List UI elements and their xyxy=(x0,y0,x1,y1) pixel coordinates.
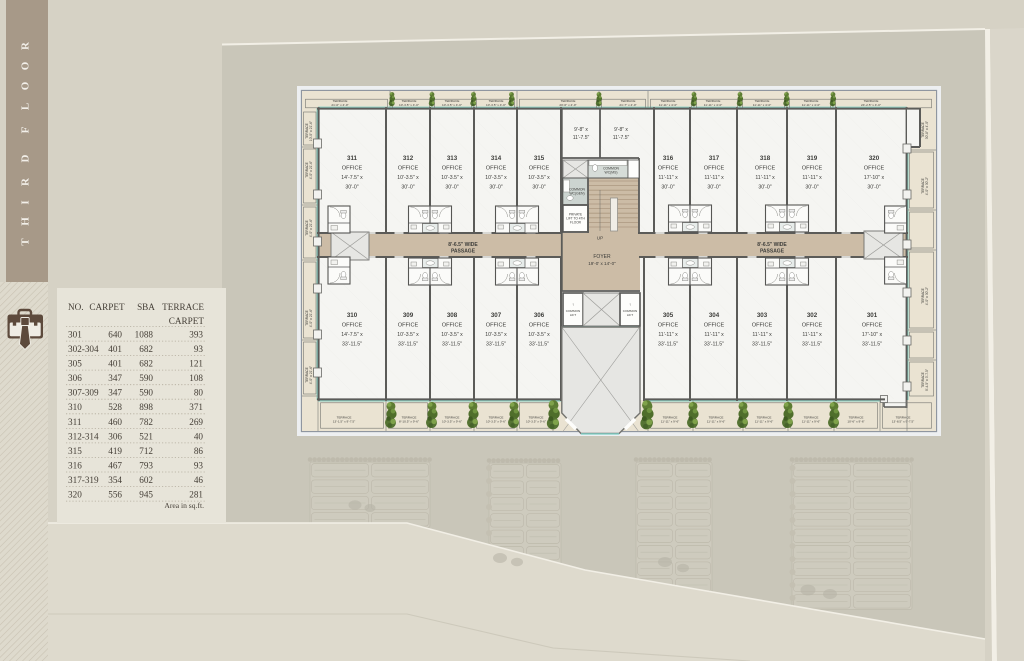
svg-text:10'-6" x 9'-6": 10'-6" x 9'-6" xyxy=(847,420,864,424)
svg-text:269: 269 xyxy=(189,417,203,427)
svg-text:33'-11.5": 33'-11.5" xyxy=(704,342,724,348)
svg-text:OFFICE: OFFICE xyxy=(802,166,823,172)
svg-text:14'-7.5" x: 14'-7.5" x xyxy=(341,175,363,181)
svg-text:I: I xyxy=(20,200,32,204)
svg-text:793: 793 xyxy=(139,461,153,471)
svg-text:OFFICE: OFFICE xyxy=(658,166,679,172)
svg-text:8'-6.5" WIDE: 8'-6.5" WIDE xyxy=(757,242,787,248)
svg-text:310: 310 xyxy=(347,312,358,319)
svg-text:30'-0": 30'-0" xyxy=(401,185,414,191)
svg-text:528: 528 xyxy=(108,402,122,412)
svg-text:319: 319 xyxy=(807,155,818,162)
svg-text:4'-0" x 21'-6": 4'-0" x 21'-6" xyxy=(309,218,313,237)
svg-text:CARPET: CARPET xyxy=(169,316,205,326)
svg-text:11'-11" x: 11'-11" x xyxy=(802,332,822,338)
svg-text:10'-3.5" x: 10'-3.5" x xyxy=(441,175,463,181)
svg-text:OFFICE: OFFICE xyxy=(864,166,885,172)
svg-text:9'-8" x: 9'-8" x xyxy=(574,127,588,133)
svg-text:30'-0": 30'-0" xyxy=(489,185,502,191)
svg-text:30'-0": 30'-0" xyxy=(867,185,880,191)
svg-text:11'-11" x: 11'-11" x xyxy=(704,175,724,181)
svg-text:WC(GEN): WC(GEN) xyxy=(569,192,584,196)
svg-text:OFFICE: OFFICE xyxy=(342,323,363,329)
svg-text:19'-0' x 14'-0": 19'-0' x 14'-0" xyxy=(588,261,616,266)
svg-text:311: 311 xyxy=(347,155,358,162)
svg-text:4'-0" x 21'-6": 4'-0" x 21'-6" xyxy=(309,160,313,179)
svg-text:33'-11.5": 33'-11.5" xyxy=(862,342,882,348)
svg-text:11'-11" x 4'-0": 11'-11" x 4'-0" xyxy=(802,103,821,107)
svg-text:UP: UP xyxy=(597,236,603,241)
svg-text:OFFICE: OFFICE xyxy=(529,166,550,172)
svg-text:Area in sq.ft.: Area in sq.ft. xyxy=(164,501,204,510)
svg-text:R: R xyxy=(20,177,32,186)
svg-text:FOYER: FOYER xyxy=(593,254,611,260)
svg-text:LIFT: LIFT xyxy=(627,313,633,317)
svg-text:682: 682 xyxy=(139,344,153,354)
svg-text:11'-11" x 9'-6": 11'-11" x 9'-6" xyxy=(802,420,821,424)
svg-text:401: 401 xyxy=(108,344,122,354)
svg-text:13'-1.5" x 9'-7.5": 13'-1.5" x 9'-7.5" xyxy=(333,420,355,424)
svg-text:↑: ↑ xyxy=(572,302,574,307)
svg-text:O: O xyxy=(20,81,32,90)
svg-text:312: 312 xyxy=(403,155,414,162)
svg-text:OFFICE: OFFICE xyxy=(752,323,773,329)
svg-text:9'-8" x: 9'-8" x xyxy=(614,127,628,133)
svg-text:10'-3.5" x: 10'-3.5" x xyxy=(441,332,463,338)
svg-text:460: 460 xyxy=(108,417,122,427)
svg-text:OFFICE: OFFICE xyxy=(658,323,679,329)
svg-text:D: D xyxy=(20,154,32,162)
svg-text:30'-0": 30'-0" xyxy=(445,185,458,191)
svg-text:93: 93 xyxy=(194,461,204,471)
svg-text:14'-7.5" x: 14'-7.5" x xyxy=(341,332,363,338)
svg-text:33'-11.5": 33'-11.5" xyxy=(342,342,362,348)
svg-text:354: 354 xyxy=(108,475,122,485)
svg-text:8'-10.5" x 9'-6": 8'-10.5" x 9'-6" xyxy=(399,420,419,424)
svg-text:108: 108 xyxy=(189,373,203,383)
svg-text:10'-3.5" x: 10'-3.5" x xyxy=(485,175,507,181)
svg-text:30'-8" x 4'-0": 30'-8" x 4'-0" xyxy=(925,120,929,139)
svg-text:11'-11" x: 11'-11" x xyxy=(658,332,678,338)
svg-text:312-314: 312-314 xyxy=(68,431,99,441)
svg-text:602: 602 xyxy=(139,475,153,485)
svg-text:10'-3.5" x 4'-0": 10'-3.5" x 4'-0" xyxy=(486,103,506,107)
svg-text:315: 315 xyxy=(68,446,82,456)
svg-text:316: 316 xyxy=(68,461,82,471)
svg-text:86: 86 xyxy=(194,446,204,456)
svg-text:318: 318 xyxy=(760,155,771,162)
svg-text:30'-0": 30'-0" xyxy=(532,185,545,191)
svg-text:33'-11.5": 33'-11.5" xyxy=(486,342,506,348)
svg-text:10'-3.5" x 9'-6": 10'-3.5" x 9'-6" xyxy=(442,420,462,424)
svg-text:11'-11" x: 11'-11" x xyxy=(755,175,775,181)
svg-text:302: 302 xyxy=(807,312,818,319)
svg-text:PASSAGE: PASSAGE xyxy=(760,249,785,255)
svg-text:11'-11" x: 11'-11" x xyxy=(704,332,724,338)
svg-text:419: 419 xyxy=(108,446,122,456)
svg-text:11'-11" x 9'-6": 11'-11" x 9'-6" xyxy=(661,420,680,424)
svg-text:OFFICE: OFFICE xyxy=(442,166,463,172)
svg-text:NO.: NO. xyxy=(68,302,84,312)
svg-text:10'-3.5" x: 10'-3.5" x xyxy=(528,175,550,181)
svg-text:301: 301 xyxy=(867,312,878,319)
svg-text:SBA: SBA xyxy=(137,302,155,312)
svg-text:33'-11.5": 33'-11.5" xyxy=(442,342,462,348)
svg-text:10'-3.5" x 4'-0": 10'-3.5" x 4'-0" xyxy=(442,103,462,107)
svg-text:315: 315 xyxy=(534,155,545,162)
svg-text:4'-0" x 30'-2": 4'-0" x 30'-2" xyxy=(925,286,929,305)
svg-text:OFFICE: OFFICE xyxy=(862,323,883,329)
svg-text:281: 281 xyxy=(189,490,203,500)
svg-text:11'-11" x: 11'-11" x xyxy=(752,332,772,338)
svg-text:305: 305 xyxy=(68,359,82,369)
svg-text:R: R xyxy=(20,41,32,50)
svg-text:11'-11" x: 11'-11" x xyxy=(802,175,822,181)
svg-text:OFFICE: OFFICE xyxy=(704,323,725,329)
svg-text:↑: ↑ xyxy=(629,302,631,307)
svg-text:80: 80 xyxy=(194,388,204,398)
svg-text:WC(MS): WC(MS) xyxy=(605,171,618,175)
svg-text:556: 556 xyxy=(108,490,122,500)
svg-text:393: 393 xyxy=(189,330,203,340)
svg-text:303: 303 xyxy=(757,312,768,319)
svg-text:O: O xyxy=(20,61,32,70)
svg-text:301: 301 xyxy=(68,330,82,340)
svg-text:30'-0": 30'-0" xyxy=(345,185,358,191)
svg-text:10'-3.5" x 4'-0": 10'-3.5" x 4'-0" xyxy=(399,103,419,107)
svg-text:10'-3.5" x: 10'-3.5" x xyxy=(397,175,419,181)
svg-text:30'-0": 30'-0" xyxy=(707,185,720,191)
svg-text:OFFICE: OFFICE xyxy=(704,166,725,172)
svg-text:21'-0" x 4'-0": 21'-0" x 4'-0" xyxy=(331,103,348,107)
svg-text:121: 121 xyxy=(189,359,203,369)
svg-text:33'-11.5": 33'-11.5" xyxy=(529,342,549,348)
svg-text:H: H xyxy=(20,217,32,226)
svg-text:11'-11" x 4'-0": 11'-11" x 4'-0" xyxy=(753,103,772,107)
svg-text:OFFICE: OFFICE xyxy=(342,166,363,172)
svg-text:945: 945 xyxy=(139,490,153,500)
svg-text:11'-11" x: 11'-11" x xyxy=(658,175,678,181)
svg-text:CARPET: CARPET xyxy=(89,302,125,312)
svg-text:33'-11.5": 33'-11.5" xyxy=(398,342,418,348)
svg-text:467: 467 xyxy=(108,461,122,471)
svg-text:308: 308 xyxy=(447,312,458,319)
svg-text:304: 304 xyxy=(709,312,720,319)
svg-text:30'-0": 30'-0" xyxy=(805,185,818,191)
svg-text:30'-0": 30'-0" xyxy=(661,185,674,191)
svg-text:640: 640 xyxy=(108,330,122,340)
svg-text:17'-10" x: 17'-10" x xyxy=(864,175,885,181)
svg-text:10'-3.5" x: 10'-3.5" x xyxy=(528,332,550,338)
svg-text:FLOOR: FLOOR xyxy=(570,221,582,225)
svg-text:33'-11.5": 33'-11.5" xyxy=(658,342,678,348)
svg-text:OFFICE: OFFICE xyxy=(398,323,419,329)
svg-text:307: 307 xyxy=(491,312,502,319)
svg-text:306: 306 xyxy=(534,312,545,319)
svg-text:371: 371 xyxy=(189,402,203,412)
svg-text:310: 310 xyxy=(68,402,82,412)
svg-text:317-319: 317-319 xyxy=(68,475,99,485)
svg-text:521: 521 xyxy=(139,431,153,441)
svg-text:309: 309 xyxy=(403,312,414,319)
svg-text:313: 313 xyxy=(447,155,458,162)
svg-text:L: L xyxy=(20,103,32,110)
svg-text:4'-0" x 21'-6": 4'-0" x 21'-6" xyxy=(309,308,313,327)
svg-text:11'-11" x 9'-6": 11'-11" x 9'-6" xyxy=(707,420,726,424)
svg-text:OFFICE: OFFICE xyxy=(486,166,507,172)
svg-text:4'-0" x 21'-6": 4'-0" x 21'-6" xyxy=(309,365,313,384)
svg-text:898: 898 xyxy=(139,402,153,412)
svg-text:782: 782 xyxy=(139,417,153,427)
svg-text:10'-3.5" x 9'-6": 10'-3.5" x 9'-6" xyxy=(526,420,546,424)
svg-text:401: 401 xyxy=(108,359,122,369)
svg-text:46: 46 xyxy=(194,475,204,485)
svg-text:306: 306 xyxy=(68,373,82,383)
svg-text:33'-11.5": 33'-11.5" xyxy=(752,342,772,348)
svg-text:93: 93 xyxy=(194,344,204,354)
svg-text:10'-3.5" x: 10'-3.5" x xyxy=(397,332,419,338)
svg-text:317: 317 xyxy=(709,155,720,162)
svg-text:8'-6.5" WIDE: 8'-6.5" WIDE xyxy=(448,242,478,248)
svg-text:20'-6" x 4'-0": 20'-6" x 4'-0" xyxy=(559,103,576,107)
svg-text:10'-0" x 21'-6": 10'-0" x 21'-6" xyxy=(309,120,313,141)
svg-text:30'-0": 30'-0" xyxy=(758,185,771,191)
svg-text:314: 314 xyxy=(491,155,502,162)
svg-text:OFFICE: OFFICE xyxy=(529,323,550,329)
svg-text:T: T xyxy=(20,238,32,246)
svg-text:320: 320 xyxy=(68,490,82,500)
svg-text:320: 320 xyxy=(869,155,880,162)
svg-text:17'-10" x: 17'-10" x xyxy=(862,332,883,338)
svg-text:40: 40 xyxy=(194,431,204,441)
svg-text:682: 682 xyxy=(139,359,153,369)
svg-text:4'-0" x 30'-2": 4'-0" x 30'-2" xyxy=(925,176,929,195)
svg-text:24'-2.5" x 4'-0": 24'-2.5" x 4'-0" xyxy=(861,103,881,107)
svg-text:306: 306 xyxy=(108,431,122,441)
svg-text:OFFICE: OFFICE xyxy=(802,323,823,329)
svg-text:13'-8.5" x 9'-7.5": 13'-8.5" x 9'-7.5" xyxy=(892,420,914,424)
svg-text:11'-7.5": 11'-7.5" xyxy=(613,135,630,141)
svg-text:PASSAGE: PASSAGE xyxy=(451,249,476,255)
svg-text:347: 347 xyxy=(108,388,122,398)
svg-text:1088: 1088 xyxy=(135,330,154,340)
svg-text:590: 590 xyxy=(139,373,153,383)
svg-text:10'-3.5" x: 10'-3.5" x xyxy=(485,332,507,338)
svg-text:TERRACE: TERRACE xyxy=(162,302,204,312)
svg-text:F: F xyxy=(20,126,32,133)
svg-text:OFFICE: OFFICE xyxy=(486,323,507,329)
svg-text:347: 347 xyxy=(108,373,122,383)
svg-text:311: 311 xyxy=(68,417,82,427)
svg-text:305: 305 xyxy=(663,312,674,319)
svg-text:11'-11" x 4'-0": 11'-11" x 4'-0" xyxy=(704,103,723,107)
svg-text:11'-11" x 4'-0": 11'-11" x 4'-0" xyxy=(659,103,678,107)
svg-text:302-304: 302-304 xyxy=(68,344,99,354)
svg-text:OFFICE: OFFICE xyxy=(398,166,419,172)
svg-text:307-309: 307-309 xyxy=(68,388,99,398)
svg-text:316: 316 xyxy=(663,155,674,162)
svg-text:OFFICE: OFFICE xyxy=(442,323,463,329)
svg-text:LIFT: LIFT xyxy=(570,313,576,317)
svg-text:9'-4.5" x 3'-7.5": 9'-4.5" x 3'-7.5" xyxy=(925,368,929,391)
svg-text:590: 590 xyxy=(139,388,153,398)
svg-text:712: 712 xyxy=(139,446,153,456)
svg-text:11'-11" x 9'-6": 11'-11" x 9'-6" xyxy=(755,420,774,424)
svg-text:OFFICE: OFFICE xyxy=(755,166,776,172)
svg-text:10'-3.5" x 9'-6": 10'-3.5" x 9'-6" xyxy=(486,420,506,424)
svg-text:21'-7" x 4'-0": 21'-7" x 4'-0" xyxy=(619,103,636,107)
svg-text:33'-11.5": 33'-11.5" xyxy=(802,342,822,348)
svg-text:11'-7.5": 11'-7.5" xyxy=(573,135,590,141)
